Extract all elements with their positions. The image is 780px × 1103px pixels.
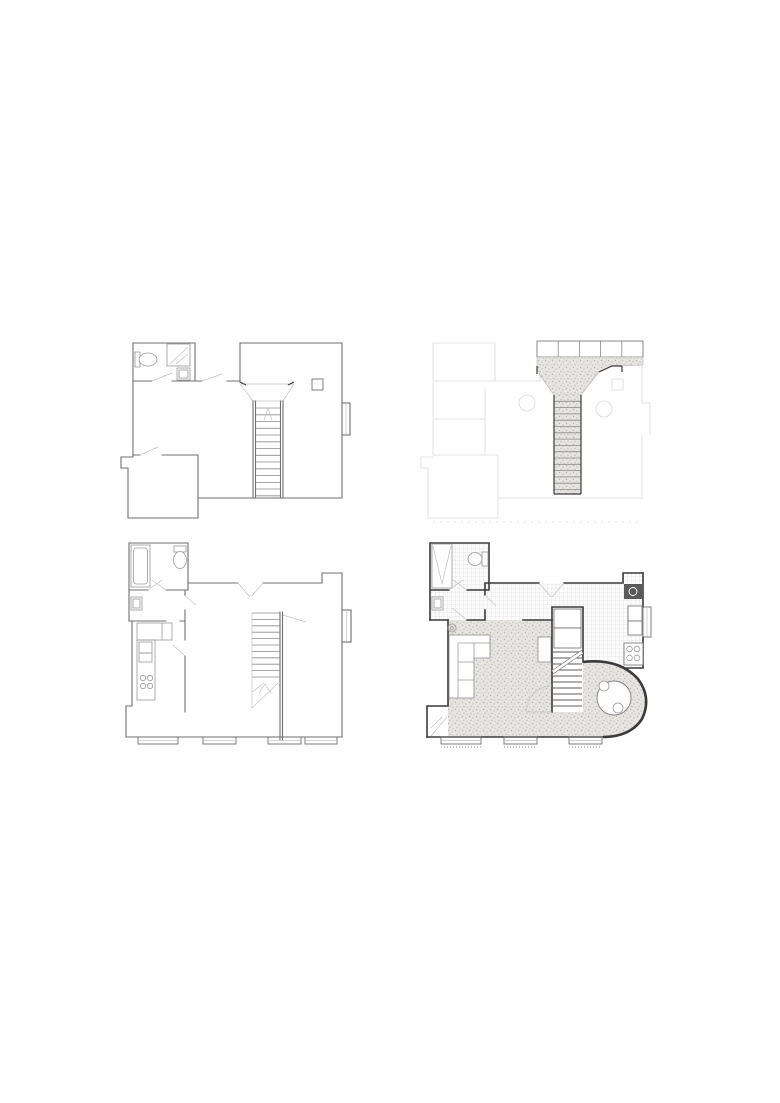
splayed-landing xyxy=(240,384,294,401)
stair-break xyxy=(553,652,582,672)
fridge xyxy=(624,584,642,599)
chair xyxy=(599,681,609,691)
under-stair-hatch xyxy=(431,717,447,736)
skylight-row xyxy=(537,341,643,357)
kitchen xyxy=(137,623,172,700)
bathroom-fixtures xyxy=(135,344,190,380)
door-swings xyxy=(140,373,222,455)
staircase xyxy=(554,395,581,494)
staircase xyxy=(240,382,294,498)
stair-cupboard xyxy=(554,609,581,628)
chair xyxy=(613,703,623,713)
stippled-landing xyxy=(537,357,643,395)
kitchen-counter xyxy=(137,623,172,640)
floor-plan-upper-proposed xyxy=(418,338,654,530)
rooflight-square xyxy=(312,379,323,390)
toilet-cistern xyxy=(174,546,186,552)
stair-treads xyxy=(252,613,280,677)
hob xyxy=(140,675,152,688)
floor-plan-ground-existing xyxy=(118,540,354,752)
kitchen-sink-unit xyxy=(628,621,642,635)
window-bays xyxy=(441,737,602,747)
ceiling-circle xyxy=(519,395,535,411)
hob-unit xyxy=(624,643,643,665)
toilet xyxy=(139,353,157,366)
staircase xyxy=(252,612,283,740)
ceiling-circle xyxy=(596,401,612,417)
kitchen-sink xyxy=(139,642,152,653)
direction-arrow xyxy=(264,408,272,420)
toilet xyxy=(174,552,187,569)
window-bays xyxy=(138,737,337,744)
stair-treads xyxy=(255,408,281,496)
shower xyxy=(432,544,452,588)
side-table xyxy=(538,637,551,662)
floor-plan-ground-proposed xyxy=(419,540,659,756)
toilet-cistern xyxy=(482,552,488,566)
kitchen-counter xyxy=(628,606,642,621)
floor-plan-upper-existing xyxy=(118,338,354,524)
stair-wall xyxy=(280,612,283,740)
faint-shell xyxy=(421,343,650,522)
bathroom-fixtures xyxy=(131,545,187,610)
toilet xyxy=(468,553,482,566)
dining xyxy=(597,681,631,715)
walls xyxy=(121,343,350,518)
stair-cupboard xyxy=(554,628,581,648)
winders xyxy=(252,613,278,708)
drawing-sheet xyxy=(0,0,780,1103)
